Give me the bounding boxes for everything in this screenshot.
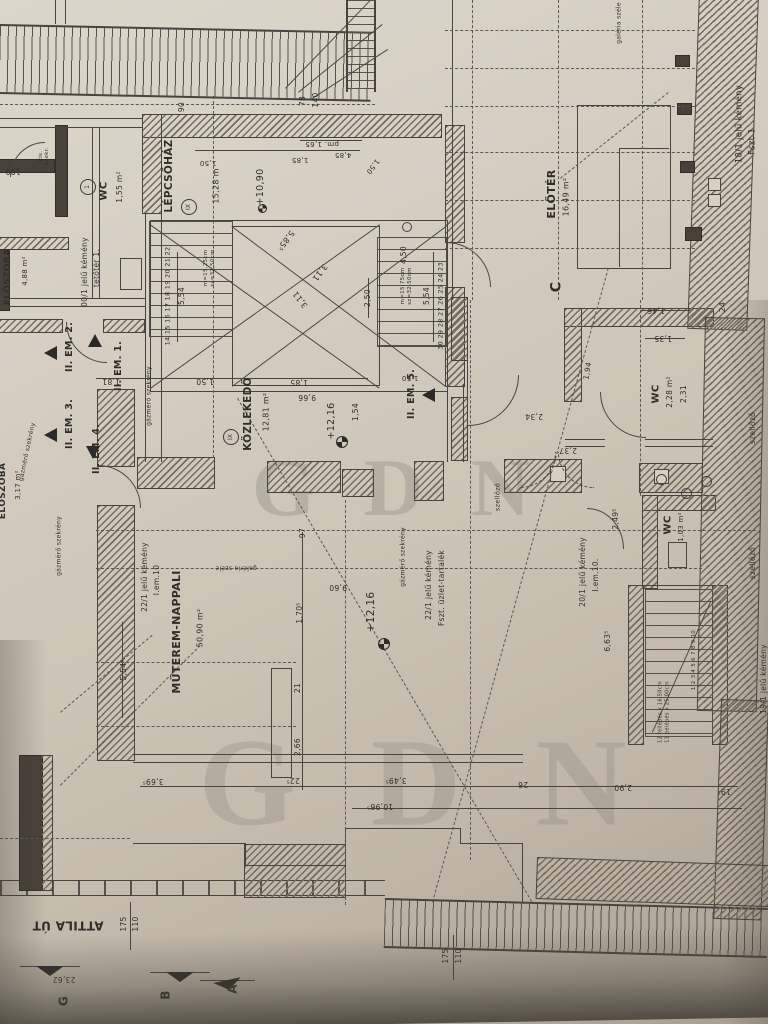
label-dim-3695: 3,69⁵ bbox=[142, 777, 163, 785]
label-circle-ix-2: IX bbox=[223, 429, 239, 445]
label-axis-b: B bbox=[159, 990, 172, 999]
label-stair-numbers-right: 30 29 28 27 26 25 24 23 bbox=[437, 262, 444, 350]
label-dim-195: 19⁵ bbox=[717, 787, 730, 795]
label-dim-3495: 3,49⁵ bbox=[385, 776, 406, 784]
label-dim-585: 5,85⁵ bbox=[275, 228, 296, 251]
label-szellozo-1: szellőző bbox=[494, 483, 501, 511]
label-level-1090: +10,90 bbox=[256, 169, 266, 206]
label-dim-5545: 5,54⁵ bbox=[120, 659, 128, 680]
label-dim-110b: 110 bbox=[455, 948, 463, 963]
label-area-wc-bottom: 1,03 m² bbox=[678, 512, 686, 542]
label-axis-c: C bbox=[549, 282, 564, 293]
label-area-kozlekedo: 12,81 m² bbox=[263, 393, 272, 432]
label-stair-pitch-a2: sz=32,50cm bbox=[210, 249, 216, 287]
label-galeria-1: galéria széle bbox=[617, 2, 624, 44]
label-dim-311a: 3,11 bbox=[310, 262, 328, 282]
label-dim-90: 90 bbox=[178, 102, 186, 112]
label-dim-266: 2,66 bbox=[294, 738, 302, 756]
label-kemeny18-line2: Fszt 1. bbox=[748, 125, 757, 155]
label-dim-150c: 1,50 bbox=[364, 157, 380, 175]
label-kemeny18-line1: 18/1 jelű kémény bbox=[735, 85, 744, 163]
label-area-wc-top: 1,55 m² bbox=[116, 171, 124, 203]
label-kemeny20-line1: 20/1 jelű kémény bbox=[579, 537, 587, 607]
label-stair2-pitch-1: 12 fellépés x 16,50cm bbox=[658, 681, 664, 743]
label-level-1216-b: +12,16 bbox=[366, 592, 378, 633]
label-axis-a: A bbox=[226, 984, 239, 994]
label-kemeny22a-line2: I.em.10 bbox=[153, 565, 161, 596]
label-dim-554b: 5,54 bbox=[423, 287, 431, 305]
label-dim-26: 26 bbox=[518, 780, 528, 788]
label-area-muterem: 50,90 m² bbox=[197, 609, 206, 648]
label-dim-194: 1,94 bbox=[582, 361, 593, 380]
label-kemeny00-line1: 00/1 jelű kémény bbox=[81, 237, 89, 307]
label-kemeny22b-line2: Fszt. üzlet-tartalék bbox=[438, 550, 446, 626]
label-kemeny22b-line1: 22/1 jelű kémény bbox=[425, 550, 433, 620]
label-dim-175a: 175 bbox=[120, 916, 128, 931]
label-axis-g: G bbox=[57, 996, 70, 1006]
label-gazmero-3: gázmérő szekrény bbox=[147, 366, 154, 426]
label-flat-em4: II. EM. 4. bbox=[92, 424, 102, 474]
label-dim-234: 2,34 bbox=[525, 412, 543, 420]
label-stair2-numbers: 1 2 3 4 5 6 7 8 9 10 bbox=[691, 630, 697, 690]
label-flat-em3: II. EM. 3. bbox=[65, 399, 75, 449]
label-room-kozlekedo: KÖZLEKEDŐ bbox=[243, 377, 255, 451]
label-room-eloszoba-1: ELŐSZOBA bbox=[4, 249, 14, 305]
label-area-eloszoba-1: 4,88 m² bbox=[22, 256, 30, 286]
label-dim-10965: 10,96⁵ bbox=[367, 802, 393, 810]
label-dim-146: 1,46 bbox=[647, 306, 665, 314]
label-dim-485: 4,85 bbox=[335, 150, 352, 158]
label-room-lepcsohaz: LÉPCSŐHÁZ bbox=[164, 139, 176, 212]
label-dim-225: 22⁵ bbox=[286, 776, 299, 784]
label-dim-181: 1,81 bbox=[102, 377, 120, 385]
label-gazmero-2: gázmérő szekrény bbox=[57, 516, 64, 576]
label-dim-140: 140 bbox=[312, 92, 320, 107]
label-stair-pitch-b2: sz=32,50cm bbox=[407, 267, 413, 305]
label-dim-175b: 175 bbox=[442, 948, 450, 963]
label-stair-length: 15,28 m bbox=[213, 168, 222, 203]
label-dim-154: 1,54 bbox=[352, 403, 360, 421]
label-room-eloter: ELŐTÉR bbox=[546, 169, 558, 218]
floorplan-sheet: GDN GDN LÉPCSŐHÁZIX15,28 m+10,90WC1,55 m… bbox=[0, 0, 768, 1024]
label-kis-szekreny: kis. szekr. bbox=[38, 147, 50, 165]
label-dim-150d: 1,50 bbox=[402, 373, 419, 381]
label-circle-1: 1 bbox=[80, 179, 96, 195]
label-kemeny00-line2: tetőtér 1. bbox=[93, 249, 101, 287]
label-dim-960: 9,60 bbox=[329, 583, 347, 591]
label-room-muterem: MŰTEREM-NAPPALI bbox=[171, 570, 183, 693]
label-stair-numbers-left: 14 15 16 17 18 19 20 21 22 bbox=[164, 247, 171, 346]
label-dim-24: 24 bbox=[719, 302, 727, 312]
label-dim-237: 2,37 bbox=[559, 446, 577, 454]
label-dim-150b: 1,50 bbox=[200, 158, 217, 166]
label-dim-450: 4,50 bbox=[400, 246, 408, 264]
label-stair2-pitch-2: 11 belépés x 25,00cm bbox=[665, 681, 671, 743]
label-dim-pm165: pm. 1,65 bbox=[305, 139, 339, 147]
label-dim-21: 21 bbox=[294, 683, 302, 693]
labels-layer: LÉPCSŐHÁZIX15,28 m+10,90WC1,55 m²100/1 j… bbox=[0, 0, 768, 1024]
label-stair-pitch-b1: m=15,75cm bbox=[400, 268, 406, 305]
label-dim-231: 2,31 bbox=[680, 385, 688, 403]
label-kemeny19: 19/1 jelű kémény bbox=[760, 644, 768, 714]
label-kemeny22a-line1: 22/1 jelű kémény bbox=[141, 542, 149, 612]
label-szellozo-2: szellőző bbox=[749, 412, 757, 444]
label-dim-290: 2,90 bbox=[614, 783, 632, 791]
label-room-wc-right: WC bbox=[651, 385, 662, 404]
label-street-name: ATTILA ÚT bbox=[32, 918, 103, 931]
label-dim-135: 1,35 bbox=[654, 334, 672, 342]
label-stair-pitch-a1: m=15,25cm bbox=[203, 250, 209, 287]
label-galeria-2: galéria széle bbox=[215, 564, 257, 571]
label-kemeny20-line2: I.em.10. bbox=[592, 558, 600, 591]
label-room-eloszoba-2: ELŐSZOBA bbox=[0, 463, 9, 519]
label-szellozo-3: szellőző bbox=[749, 547, 757, 579]
label-room-wc-top: WC bbox=[99, 182, 110, 201]
label-dim-97: 97 bbox=[299, 528, 307, 538]
label-dim-110a: 110 bbox=[132, 916, 140, 931]
label-room-wc-bottom: WC bbox=[663, 516, 674, 535]
label-dim-250: 2,50 bbox=[364, 289, 372, 307]
label-dim-78: 78 bbox=[299, 96, 307, 106]
label-area-eloter: 16,49 m² bbox=[563, 178, 572, 217]
label-circle-ix-1: IX bbox=[181, 199, 197, 215]
label-dim-190: 190 bbox=[5, 167, 20, 175]
label-dim-185b: 1,85 bbox=[292, 155, 309, 163]
label-gazmero-4: gázmérő szekrény bbox=[401, 527, 408, 587]
label-flat-em2: II. EM. 2. bbox=[65, 322, 75, 372]
label-dim-311b: 3,11 bbox=[292, 289, 310, 309]
label-level-1216-a: +12,16 bbox=[327, 403, 337, 440]
label-gazmero-1: gázmérő szekrény bbox=[19, 422, 38, 482]
label-dim-554a: 5,54 bbox=[178, 287, 186, 305]
label-dim-150a: 1,50 bbox=[196, 377, 214, 385]
label-dim-1705: 1,70⁵ bbox=[296, 602, 304, 623]
label-dim-6635: 6,63⁵ bbox=[604, 630, 612, 651]
label-dim-185a: 1,85 bbox=[290, 378, 308, 386]
label-dim-2362: 23,62 bbox=[53, 975, 76, 983]
label-dim-966: 9,66 bbox=[298, 393, 316, 401]
label-dim-2495: 2,49⁵ bbox=[612, 508, 620, 529]
label-area-wc-right: 2,28 m² bbox=[666, 376, 674, 408]
